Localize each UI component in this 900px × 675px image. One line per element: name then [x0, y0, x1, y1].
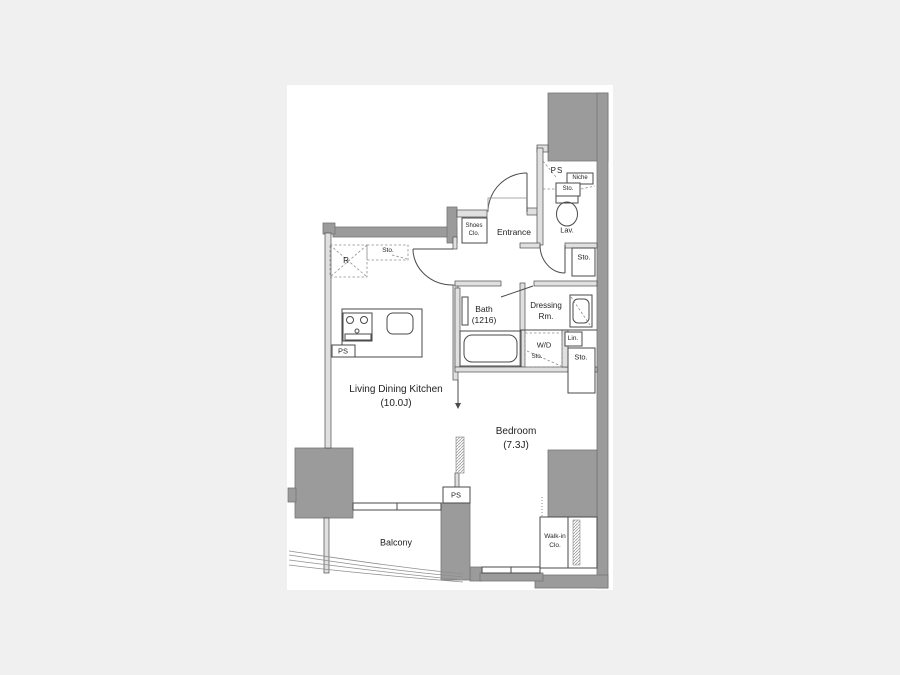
sliding-door-hatch [455, 380, 464, 473]
bedroom-window [482, 567, 540, 573]
label-entrance: Entrance [497, 228, 531, 237]
label-dressing-2: Rm. [539, 313, 554, 321]
label-sto-lavatory: Sto. [563, 186, 574, 192]
label-refrigerator: R [343, 257, 349, 265]
label-linen: Lin. [568, 336, 578, 343]
label-ldk-size: (10.0J) [380, 399, 411, 409]
label-sto-kitchen: Sto. [382, 248, 394, 255]
label-ps-top: PS [551, 167, 564, 175]
floorplan-canvas: PS Niche Sto. Lav. Sto. Entrance Shoes C… [0, 0, 900, 675]
bath-door [501, 286, 533, 297]
label-ldk-name: Living Dining Kitchen [349, 385, 442, 395]
washbasin [570, 295, 592, 327]
label-walkin-2: Clo. [549, 543, 561, 550]
floorplan: PS Niche Sto. Lav. Sto. Entrance Shoes C… [287, 85, 613, 590]
porch-outline [488, 198, 527, 212]
label-ps-kitchen: PS [338, 347, 348, 355]
floorplan-drawing [287, 85, 613, 590]
label-dressing-1: Dressing [530, 302, 562, 310]
ldk-door [413, 249, 453, 285]
toilet-fixture [556, 193, 578, 226]
label-shoes-closet-2: Clo. [469, 231, 480, 237]
label-washer-dryer: W/D [537, 341, 552, 349]
label-sto-right: Sto. [574, 353, 587, 361]
label-balcony: Balcony [380, 539, 412, 548]
balcony-window [353, 503, 441, 510]
kitchen-sink [387, 313, 413, 334]
label-shoes-closet-1: Shoes [465, 223, 482, 229]
label-sto-vestibule: Sto. [577, 253, 590, 261]
entrance-door [488, 173, 527, 212]
stove-burners [343, 313, 372, 341]
label-walkin-1: Walk-in [544, 534, 565, 541]
balcony-edge-lines [289, 551, 463, 582]
label-ps-bedroom: PS [451, 491, 461, 499]
washer-dryer-space [525, 333, 562, 367]
label-lavatory: Lav. [560, 226, 574, 234]
label-bath-name: Bath [475, 305, 493, 314]
label-bedroom-size: (7.3J) [503, 441, 529, 451]
label-niche: Niche [572, 175, 587, 181]
lavatory-door [540, 245, 565, 273]
label-sto-wd: Sto. [532, 354, 543, 360]
label-bath-size: (1216) [472, 316, 497, 325]
label-bedroom-name: Bedroom [496, 427, 537, 437]
